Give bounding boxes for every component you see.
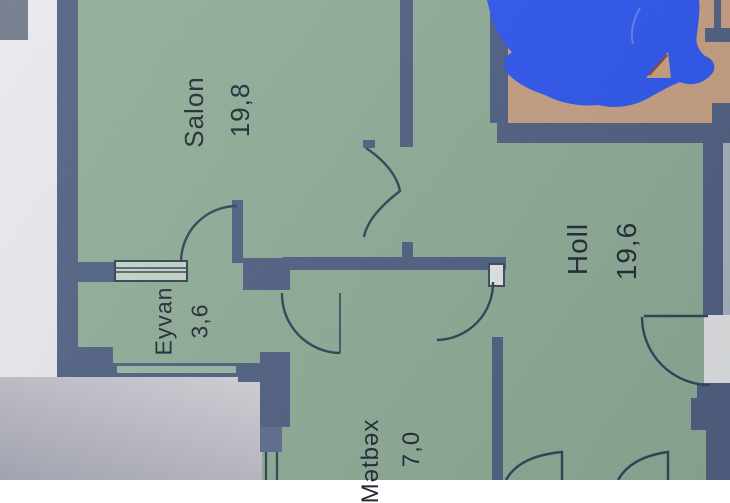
room-label-salon: Salon (181, 76, 207, 148)
room-label-metbex: Mətbəx (359, 419, 383, 503)
room-label-holl: Holl (564, 223, 592, 275)
room-area-salon: 19,8 (227, 83, 253, 138)
floorplan-photo: Salon 19,8 Eyvan 3,6 Holl 19,6 Mətbəx 7,… (0, 0, 730, 480)
room-area-holl: 19,6 (613, 222, 641, 281)
room-area-metbex: 7,0 (400, 431, 424, 467)
room-area-eyvan: 3,6 (189, 304, 212, 339)
room-label-eyvan: Eyvan (153, 287, 176, 356)
